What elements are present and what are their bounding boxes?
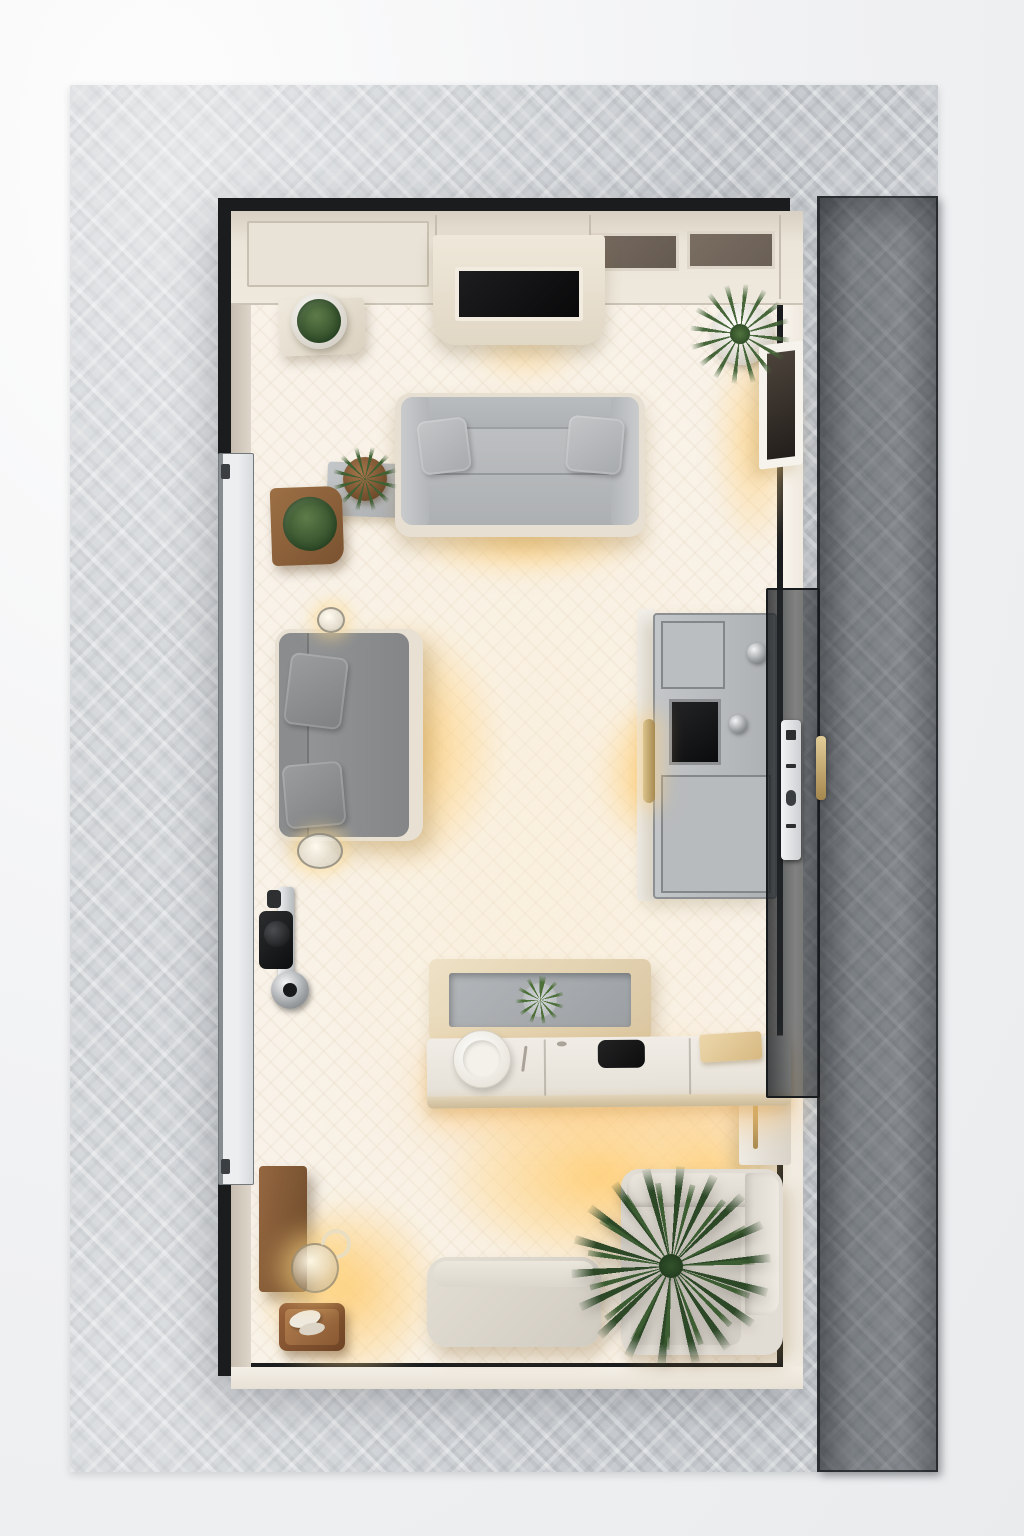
cabinet-seam — [779, 215, 781, 299]
wooden-planter-box — [270, 486, 345, 566]
lock-cylinder — [264, 921, 290, 947]
console-table — [429, 959, 651, 1041]
sofa-left — [275, 629, 423, 841]
sofa-top — [395, 393, 645, 537]
pendant-ring — [315, 1223, 357, 1265]
plate-center — [463, 1040, 501, 1078]
pendant-lamp — [291, 1243, 339, 1293]
palm-core — [659, 1254, 683, 1278]
tinted-glass-wall-panel — [817, 196, 938, 1472]
plate — [453, 1030, 512, 1089]
sofa-pillow — [281, 761, 346, 830]
utensil — [557, 1041, 567, 1046]
serving-board — [699, 1031, 763, 1063]
console-plant — [516, 976, 564, 1024]
control-button — [786, 790, 796, 806]
small-spiky-plant — [332, 446, 398, 512]
tv-unit — [433, 235, 605, 345]
brass-door-handle — [816, 736, 826, 800]
control-button — [786, 730, 796, 740]
counter-seam — [689, 1038, 691, 1094]
bush-plant — [297, 299, 341, 343]
lock-bolt — [267, 890, 281, 908]
spiky-plant — [690, 284, 790, 384]
palm-plant — [571, 1166, 771, 1366]
chrome-knob — [747, 643, 767, 663]
kitchen-unit — [653, 613, 777, 899]
oven-screen — [669, 699, 721, 765]
bush-plant — [282, 496, 338, 552]
breakfast-counter — [427, 1035, 792, 1108]
door-lock-hardware — [259, 887, 313, 1011]
cabinet-door — [661, 621, 725, 689]
door-hinge — [221, 1159, 230, 1174]
glass-sconce — [317, 607, 345, 633]
control-button — [786, 764, 796, 768]
tv-screen — [455, 267, 583, 321]
utensil — [521, 1046, 527, 1072]
lock-keyhole — [283, 983, 297, 997]
chrome-knob — [729, 715, 747, 733]
counter-seam — [544, 1040, 546, 1096]
plant-core — [730, 324, 750, 344]
door-control-strip — [781, 720, 801, 860]
door-hinge — [221, 464, 230, 479]
counter-fascia — [427, 1093, 791, 1108]
cabinet-panel — [247, 221, 429, 287]
sofa-pillow — [565, 415, 626, 476]
bottom-wall — [231, 1367, 803, 1389]
control-button — [786, 824, 796, 828]
glass-sconce — [297, 833, 343, 869]
entry-door — [218, 453, 254, 1185]
brass-sconce — [643, 719, 655, 803]
sofa-pillow — [283, 652, 349, 731]
sofa-seam — [431, 473, 609, 475]
cooktop — [598, 1040, 645, 1068]
room-shell — [218, 198, 790, 1376]
cabinet-door — [661, 775, 771, 893]
white-plant-pot — [291, 293, 347, 349]
lock-knob — [271, 971, 309, 1009]
dark-ceiling-panel — [687, 231, 775, 269]
sofa-pillow — [416, 416, 472, 476]
wooden-tray — [279, 1303, 345, 1351]
